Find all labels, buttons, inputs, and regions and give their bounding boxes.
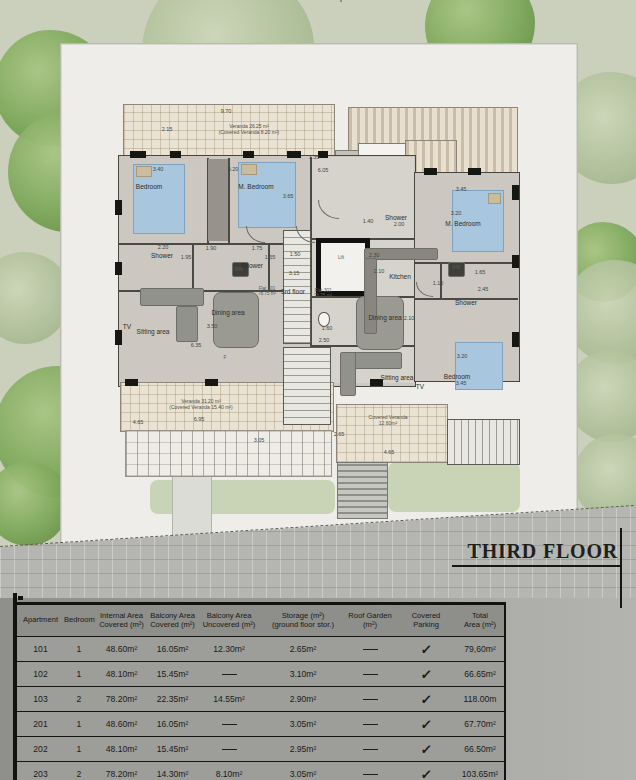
- table-cell: [344, 719, 396, 729]
- table-cell: [344, 694, 396, 704]
- none-dash: [363, 649, 378, 650]
- dimension-label: 1.55: [265, 254, 276, 260]
- cabinet: [176, 306, 198, 342]
- table-header-cell: Roof Garden(m²): [344, 612, 396, 630]
- wall-segment: [125, 379, 138, 386]
- title-block: THIRD FLOOR: [468, 540, 618, 563]
- table-cell: [344, 669, 396, 679]
- dimension-label: 4.65: [384, 449, 395, 455]
- dimension-label: 6.35: [191, 342, 202, 348]
- checkmark-icon: ✓: [419, 642, 432, 657]
- dimension-label: 2.65: [334, 431, 345, 437]
- room-label: TV: [123, 323, 131, 330]
- table-cell: [196, 669, 262, 679]
- table-cell: 2: [64, 769, 94, 779]
- wall-segment: [512, 255, 519, 268]
- dimension-label: 1.95: [181, 254, 192, 260]
- table-cell: [196, 719, 262, 729]
- dimension-label: 3.15: [289, 270, 300, 276]
- wall-segment: [512, 185, 519, 200]
- table-cell: [344, 644, 396, 654]
- pillow: [241, 164, 257, 175]
- dimension-label: 3.65: [283, 193, 294, 199]
- room-label: Lift: [338, 255, 344, 260]
- table-header-cell: Storage (m²)(ground floor stor.): [262, 612, 344, 630]
- table-cell: 66.65m²: [456, 669, 504, 679]
- table-header-cell: Internal AreaCovered (m²): [94, 612, 149, 630]
- table-cell: 22.35m²: [149, 694, 196, 704]
- dimension-label: 3.20: [228, 166, 239, 172]
- room-label: Bedroom: [136, 183, 162, 190]
- table-cell: 1: [64, 744, 94, 754]
- stairs-lower: [283, 347, 331, 425]
- table-cell: 16.05m²: [149, 644, 196, 654]
- room-label: Shower: [455, 299, 477, 306]
- table-cell: 78.20m²: [94, 769, 149, 779]
- table-cell: 3.05m²: [262, 769, 344, 779]
- dimension-label: 3.20: [457, 353, 468, 359]
- dimension-label: 3.45: [456, 186, 467, 192]
- none-dash: [363, 774, 378, 775]
- table-cell: 1: [64, 719, 94, 729]
- table-row: 203278.20m²14.30m²8.10m²3.05m²✓103.65m²: [17, 761, 504, 780]
- table-cell: 8.10m²: [196, 769, 262, 779]
- dimension-label: 3.50: [207, 323, 218, 329]
- room-label: Dining area: [368, 314, 401, 321]
- page-title: THIRD FLOOR: [468, 540, 618, 562]
- table-cell: 102: [17, 669, 64, 679]
- wall-segment: [115, 262, 122, 275]
- dimension-label: 2.00: [394, 221, 405, 227]
- table-cell: ✓: [396, 692, 456, 707]
- table-cell: 78.20m²: [94, 694, 149, 704]
- wall-segment: [170, 151, 181, 158]
- veranda-note: Covered Veranda12.60m²: [369, 415, 408, 427]
- table-cell: 2.95m²: [262, 744, 344, 754]
- veranda-note: Veranda 31.20 m²(Covered Veranda 15.40 m…: [169, 399, 232, 411]
- table-cell: 12.30m²: [196, 644, 262, 654]
- dimension-label: 3.20: [451, 210, 462, 216]
- dimension-label: 1.10: [433, 280, 444, 286]
- table-cell: [344, 744, 396, 754]
- wall-segment: [115, 330, 122, 345]
- pergola-grid-bottom: [125, 430, 332, 477]
- table-cell: [196, 744, 262, 754]
- table-cell: 66.50m²: [456, 744, 504, 754]
- table-row: 102148.10m²15.45m²3.10m²✓66.65m²: [17, 661, 504, 686]
- wall-segment: [130, 151, 146, 158]
- table-cell: 48.10m²: [94, 669, 149, 679]
- table-cell: 15.45m²: [149, 669, 196, 679]
- wall: [414, 262, 518, 264]
- table-row: 201148.60m²16.05m²3.05m²✓67.70m²: [17, 711, 504, 736]
- room-label: WM: [452, 265, 460, 270]
- table-cell: 48.10m²: [94, 744, 149, 754]
- wall: [192, 243, 194, 290]
- table-header-cell: TotalArea (m²): [456, 612, 504, 630]
- dimension-label: 6.05: [318, 167, 329, 173]
- table-row: 101148.60m²16.05m²12.30m²2.65m²✓79,60m²: [17, 636, 504, 661]
- checkmark-icon: ✓: [419, 667, 432, 682]
- table-cell: 48.60m²: [94, 644, 149, 654]
- table-row: 103278.20m²22.35m²14.55m²2.90m²✓118.00m: [17, 686, 504, 711]
- table-cell: 16.05m²: [149, 719, 196, 729]
- room-label: Shower: [151, 252, 173, 259]
- table-cell: 14.55m²: [196, 694, 262, 704]
- hedge: [388, 462, 520, 512]
- wall-segment: [318, 151, 328, 158]
- table-cell: [344, 769, 396, 779]
- table-cell: 103.65m²: [456, 769, 504, 779]
- none-dash: [222, 724, 237, 725]
- room-label: Sitting area: [137, 328, 170, 335]
- room-label: F: [224, 355, 227, 360]
- sofa: [140, 288, 204, 306]
- table-header-cell: Balcony AreaUncovered (m²): [196, 612, 262, 630]
- title-underline: [452, 565, 622, 567]
- table-cell: 2: [64, 694, 94, 704]
- table-cell: 118.00m: [456, 694, 504, 704]
- room-label: Sitting area: [381, 374, 414, 381]
- dimension-label: 3.05: [254, 437, 265, 443]
- dimension-label: 9.70: [221, 108, 232, 114]
- room-label: Kitchen: [389, 273, 411, 280]
- room-label: M. Bedroom: [445, 220, 480, 227]
- wall: [268, 243, 270, 290]
- sofa: [340, 352, 356, 396]
- table-cell: 2.90m²: [262, 694, 344, 704]
- table-header-cell: CoveredParking: [396, 612, 456, 630]
- table-cell: 3.05m²: [262, 719, 344, 729]
- dimension-label: 6.95: [194, 416, 205, 422]
- dimension-label: 1.65: [475, 269, 486, 275]
- room-label: M. Bedroom: [238, 183, 273, 190]
- checkmark-icon: ✓: [419, 717, 432, 732]
- dimension-label: 2.50: [319, 337, 330, 343]
- pillow: [488, 193, 501, 204]
- dimension-label: 3.40: [153, 166, 164, 172]
- none-dash: [363, 699, 378, 700]
- veranda-note: Veranda 26.25 m²(Covered Veranda 8.20 m²…: [219, 124, 280, 136]
- table-cell: 203: [17, 769, 64, 779]
- table-cell: 79,60m²: [456, 644, 504, 654]
- sofa: [340, 0, 342, 2]
- checkmark-icon: ✓: [419, 742, 432, 757]
- table-cell: ✓: [396, 742, 456, 757]
- room-label: Flat 30278.75 m²: [314, 288, 332, 299]
- table-cell: ✓: [396, 767, 456, 780]
- dimension-label: 1.50: [290, 251, 301, 257]
- none-dash: [363, 724, 378, 725]
- dimension-label: 2.10: [404, 315, 415, 321]
- table-cell: 67.70m²: [456, 719, 504, 729]
- dimension-label: 2.10: [374, 268, 385, 274]
- room-label: TV: [416, 383, 424, 390]
- dimension-label: 1.60: [322, 325, 333, 331]
- none-dash: [222, 749, 237, 750]
- room-label: Shower: [241, 262, 263, 269]
- dimension-label: 2.45: [478, 286, 489, 292]
- room-label: 3rd floor: [281, 288, 305, 295]
- wall-segment: [424, 168, 437, 175]
- floor-plan-sheet: BedroomM. BedroomM. BedroomBedroomShower…: [0, 0, 636, 780]
- table-header-cell: Bedroom: [64, 616, 94, 625]
- table-corner-tick: [18, 596, 23, 600]
- table-cell: 48.60m²: [94, 719, 149, 729]
- table-cell: 1: [64, 644, 94, 654]
- dimension-label: 1.75: [252, 245, 263, 251]
- wall-segment: [512, 332, 519, 347]
- pillow: [136, 166, 152, 177]
- table-body: 101148.60m²16.05m²12.30m²2.65m²✓79,60m²1…: [17, 636, 504, 780]
- dimension-label: 2.20: [158, 244, 169, 250]
- table-row: 202148.10m²15.45m²2.95m²✓66.50m²: [17, 736, 504, 761]
- table-cell: 2.65m²: [262, 644, 344, 654]
- table-cell: 202: [17, 744, 64, 754]
- table-cell: 103: [17, 694, 64, 704]
- dimension-label: 2.15: [162, 126, 173, 132]
- dimension-label: 4.65: [133, 419, 144, 425]
- dining-table: [213, 292, 259, 348]
- table-cell: ✓: [396, 717, 456, 732]
- stairs-upper: [283, 230, 311, 344]
- wall-segment: [287, 151, 301, 158]
- table-cell: ✓: [396, 642, 456, 657]
- wall-segment: [468, 168, 481, 175]
- dimension-label: 2.30: [369, 252, 380, 258]
- wall-segment: [115, 200, 122, 215]
- title-vertical-rule: [620, 528, 622, 608]
- table-cell: 14.30m²: [149, 769, 196, 779]
- room-label: Flat 30178.75 m²: [258, 286, 276, 297]
- dimension-label: 1.35: [309, 154, 320, 160]
- table-header-cell: Balcony AreaCovered (m²): [149, 612, 196, 630]
- dimension-label: 1.40: [363, 218, 374, 224]
- table-cell: 201: [17, 719, 64, 729]
- dimension-label: 3.45: [456, 380, 467, 386]
- table-header-cell: Apartment: [17, 616, 64, 625]
- closet: [208, 159, 228, 241]
- room-label: Dining area: [211, 309, 244, 316]
- wall-segment: [243, 151, 254, 158]
- room-label: WM: [235, 267, 243, 272]
- exterior-stairs: [447, 419, 520, 465]
- none-dash: [363, 749, 378, 750]
- table-cell: 1: [64, 669, 94, 679]
- table-cell: ✓: [396, 667, 456, 682]
- table-cell: 15.45m²: [149, 744, 196, 754]
- areas-table: ApartmentBedroomInternal AreaCovered (m²…: [13, 602, 506, 780]
- table-cell: 101: [17, 644, 64, 654]
- checkmark-icon: ✓: [419, 692, 432, 707]
- wall-segment: [205, 379, 218, 386]
- table-cell: 3.10m²: [262, 669, 344, 679]
- table-header-row: ApartmentBedroomInternal AreaCovered (m²…: [17, 605, 504, 636]
- entry-walkway: [337, 462, 388, 519]
- checkmark-icon: ✓: [419, 767, 432, 780]
- none-dash: [363, 674, 378, 675]
- none-dash: [222, 674, 237, 675]
- dimension-label: 1.90: [206, 245, 217, 251]
